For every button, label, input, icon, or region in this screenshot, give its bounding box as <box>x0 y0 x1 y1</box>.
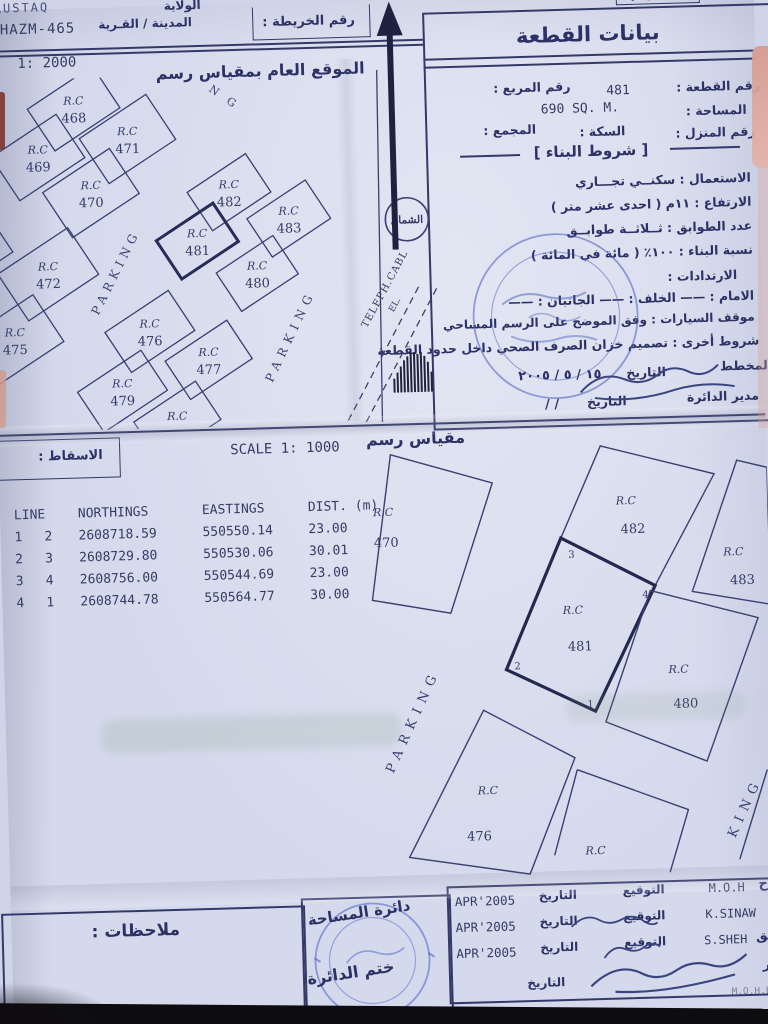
cell: 550530.06 <box>203 544 309 562</box>
svg-text:468: 468 <box>61 111 86 127</box>
village-value: LHAZM-465 <box>0 20 75 38</box>
cell: 1 <box>46 595 80 611</box>
svg-text:R.C: R.C <box>186 227 208 241</box>
svg-text:R.C: R.C <box>722 545 744 559</box>
svg-text:470: 470 <box>79 196 104 212</box>
square-no-label: رقم المربع : <box>493 79 571 96</box>
plot-no-label: رقم القطعة : <box>676 77 760 94</box>
svg-text:483: 483 <box>276 221 301 237</box>
sig-name-3: S.SHEH <box>704 932 748 947</box>
svg-text:479: 479 <box>110 394 135 410</box>
col-header-line: LINE <box>14 507 78 524</box>
cell: 2608744.78 <box>80 591 204 609</box>
map-no-label: رقم الخريطة : <box>262 13 355 31</box>
lower-scale-en: SCALE 1: 1000 <box>230 439 340 458</box>
cell: 550564.77 <box>204 588 310 606</box>
svg-text:R.C: R.C <box>477 784 499 798</box>
upper-scale-value: 1: 2000 <box>17 54 76 72</box>
cell: 2608718.59 <box>78 525 202 543</box>
svg-text:477: 477 <box>196 362 221 378</box>
svg-text:482: 482 <box>217 195 242 211</box>
cell: 550550.14 <box>202 522 308 540</box>
sig-date-label-3: التاريخ <box>540 940 578 955</box>
area-value: 690 SQ. M. <box>541 100 620 117</box>
svg-text:R.C: R.C <box>615 494 637 508</box>
director-signature <box>574 350 745 407</box>
parking-street-partial: N G <box>206 82 241 112</box>
svg-text:476: 476 <box>467 829 492 845</box>
svg-text:481: 481 <box>185 244 210 260</box>
photo-edge-pink-sliver <box>0 370 6 428</box>
signature-squiggle-4 <box>584 948 755 999</box>
signature-squiggle-2 <box>567 908 660 935</box>
cell: 3 <box>45 551 79 567</box>
corner-2: 2 <box>514 661 521 672</box>
svg-text:475: 475 <box>3 343 28 359</box>
cell: 2608729.80 <box>79 547 203 565</box>
complex-label: المجمع : <box>483 122 536 138</box>
svg-text:480: 480 <box>245 276 270 292</box>
svg-text:472: 472 <box>36 277 61 293</box>
village-label: المدينة / القـرية <box>98 15 192 32</box>
paper-tilt: RUSTAQ LHAZM-465 المدينة / القـرية الولا… <box>0 0 768 1024</box>
svg-text:R.C: R.C <box>4 326 26 340</box>
corner-4: 4 <box>642 590 649 601</box>
plot-no-value: 481 <box>606 83 630 99</box>
sig-date-3: APR'2005 <box>456 944 517 961</box>
col-header-northings: NORTHINGS <box>78 503 202 521</box>
cell: 3 <box>16 573 46 589</box>
svg-text:R.C: R.C <box>562 603 584 617</box>
wilayat-value-partial: RUSTAQ <box>0 0 49 16</box>
setbacks-label: الارتدادات : <box>667 267 737 284</box>
parking-street-label-2: PARKING <box>262 288 318 385</box>
svg-text:482: 482 <box>620 522 645 538</box>
svg-text:R.C: R.C <box>218 178 240 192</box>
svg-text:R.C: R.C <box>667 663 689 677</box>
sig-name-ar-3: تدقيق <box>756 928 768 944</box>
cell: 4 <box>16 595 46 611</box>
ink-bleed-through-2 <box>565 690 746 723</box>
north-arrow-icon <box>366 0 433 256</box>
lower-map: R.C 470 R.C 482 R.C 483 R.C 481 R.C 480 … <box>328 439 768 899</box>
svg-text:R.C: R.C <box>116 125 138 139</box>
svg-text:R.C: R.C <box>138 317 160 331</box>
paper-page: RUSTAQ LHAZM-465 المدينة / القـرية الولا… <box>0 0 768 1024</box>
svg-text:R.C: R.C <box>197 346 219 360</box>
svg-text:476: 476 <box>138 334 163 350</box>
notes-label: ملاحظات : <box>91 920 180 942</box>
svg-text:483: 483 <box>730 573 755 589</box>
svg-text:R.C: R.C <box>372 506 394 520</box>
cell: 2 <box>15 551 45 567</box>
parking-street-partial: KING <box>725 775 765 840</box>
svg-text:R.C: R.C <box>111 377 133 391</box>
sig-name-2: K.SINAW <box>705 906 756 921</box>
cell: 550544.69 <box>204 566 310 584</box>
sig-date-2: APR'2005 <box>455 918 516 935</box>
org-abbrev: M.O.H.E.W <box>731 985 768 997</box>
photo-edge-pink-faint <box>758 168 768 428</box>
svg-text:R.C: R.C <box>37 260 59 274</box>
svg-text:471: 471 <box>115 142 140 158</box>
svg-text:470: 470 <box>374 536 399 552</box>
cell: 2608756.00 <box>80 569 204 587</box>
svg-text:R.C: R.C <box>246 259 268 273</box>
cell: 2 <box>44 529 78 545</box>
sig-date-label-4: التاريخ <box>527 975 565 990</box>
utility-hatch-icon <box>394 352 433 393</box>
projection-label: الاسقاط : <box>38 448 103 465</box>
cell: 4 <box>46 573 80 589</box>
street-label: السكة : <box>579 123 625 139</box>
svg-text:R.C: R.C <box>79 179 101 193</box>
telephone-cable-label: TELEPH.CABL <box>360 249 411 330</box>
photo-corner-shadow <box>0 982 120 1024</box>
svg-text:469: 469 <box>26 160 51 176</box>
el-line-label: EL. <box>387 296 403 314</box>
photo-edge-pink-strip <box>752 46 768 168</box>
svg-text:R.C: R.C <box>584 844 606 858</box>
corner-3: 3 <box>568 550 575 561</box>
col-header-eastings: EASTINGS <box>202 500 308 518</box>
svg-text:481: 481 <box>568 639 593 655</box>
photo-edge-red-sliver <box>0 92 5 150</box>
wilayat-label: الولاية <box>164 0 201 13</box>
sig-name-ar-4: مدير <box>763 957 768 973</box>
svg-text:R.C: R.C <box>277 204 299 218</box>
scanned-document: RUSTAQ LHAZM-465 المدينة / القـرية الولا… <box>0 0 768 1024</box>
svg-text:R.C: R.C <box>26 143 48 157</box>
cell: 1 <box>14 529 44 545</box>
svg-text:R.C: R.C <box>62 94 84 108</box>
area-label: المساحة : <box>686 102 747 119</box>
